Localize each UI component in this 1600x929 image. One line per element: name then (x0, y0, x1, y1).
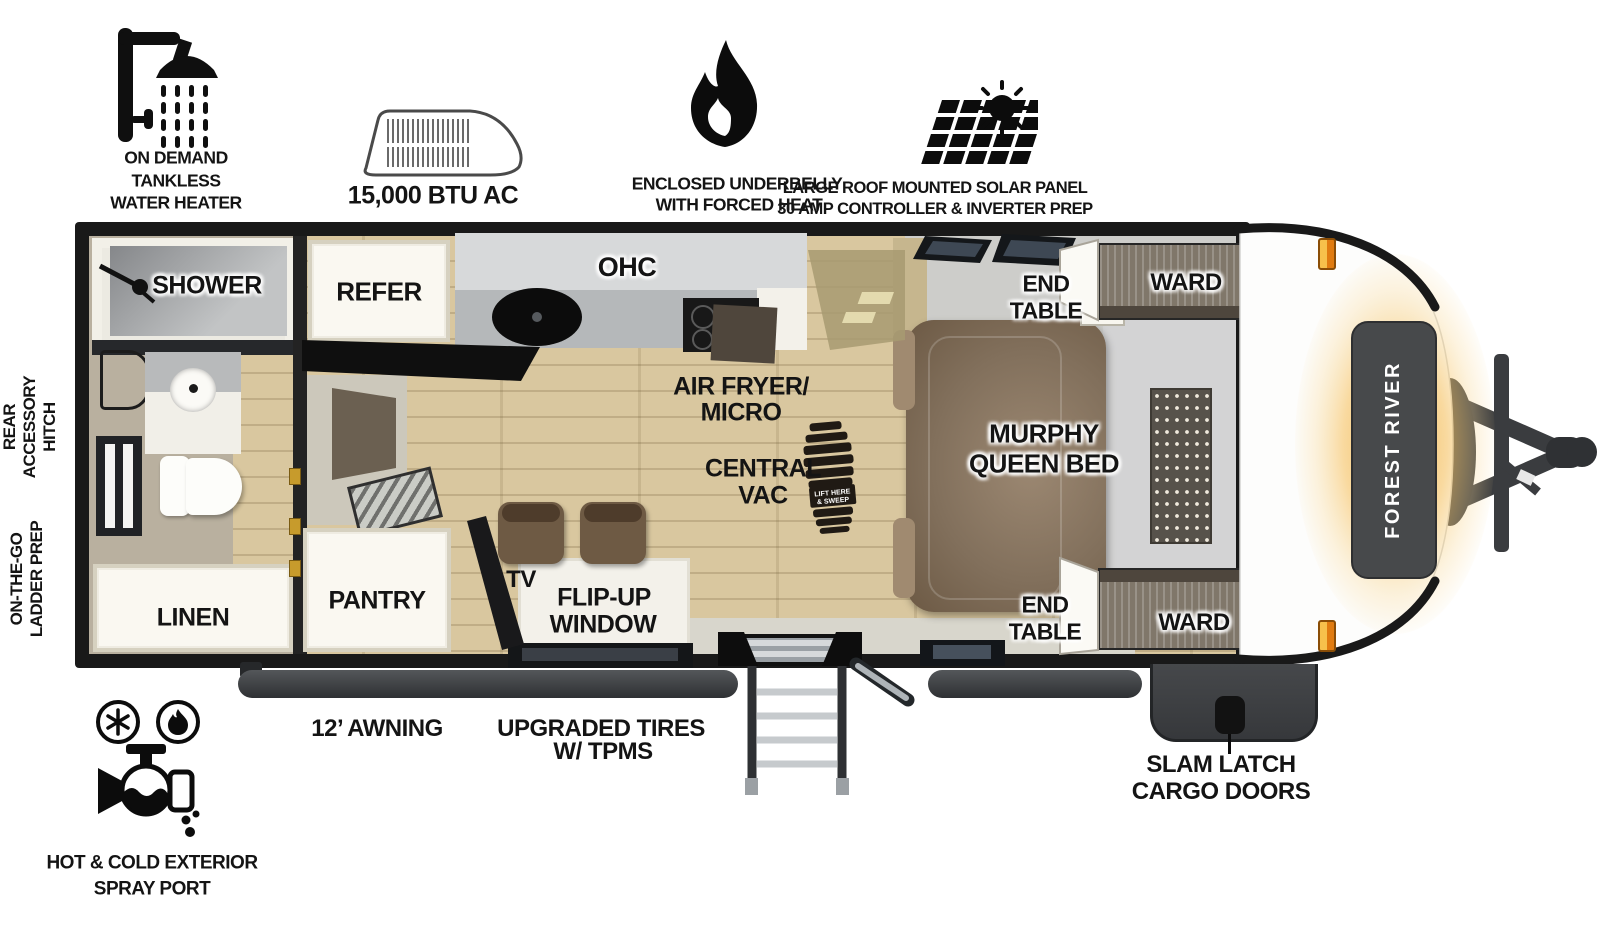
grab-handle (856, 664, 908, 700)
door-hinge (289, 468, 301, 485)
door-hinge (289, 518, 301, 535)
awning-tube (238, 670, 738, 698)
tires-label-2: W/ TPMS (553, 739, 652, 765)
flip-up-window-label-1: FLIP-UP (557, 584, 651, 612)
shower-label: SHOWER (152, 272, 262, 300)
slam-latch-handle (1215, 696, 1245, 734)
tongue-hitch (1424, 354, 1597, 552)
sofa-armrest (893, 518, 915, 598)
ward-bottom-label: WARD (1158, 610, 1229, 636)
air-fryer-micro-unit (711, 304, 778, 363)
entry-step-well (735, 634, 853, 666)
murphy-bed-label-1: MURPHY (989, 420, 1099, 449)
ohc-label: OHC (598, 253, 657, 283)
refer-label: REFER (336, 278, 422, 307)
cargo-door (1150, 664, 1318, 742)
central-vac-label-1: CENTRAL (705, 455, 821, 483)
front-cap (1240, 224, 1453, 664)
shower-head-icon (110, 14, 230, 150)
rear-accessory-hitch-label: REAR ACCESSORY HITCH (0, 376, 60, 479)
tv-label: TV (506, 567, 536, 593)
flame-small-icon (168, 709, 188, 735)
floorplan-scene: ON DEMAND TANKLESS WATER HEATER 15,000 B… (0, 0, 1600, 929)
linen-label: LINEN (157, 604, 230, 632)
snowflake-icon (108, 710, 128, 734)
water-heater-label-1: ON DEMAND (124, 148, 227, 167)
awning-tube (928, 670, 1142, 698)
brand-logo-text: FOREST RIVER (1382, 361, 1406, 539)
marker-light (1318, 238, 1336, 270)
end-table-bottom-label-1: END (1021, 592, 1068, 617)
flame-icon (674, 38, 774, 156)
bath-mirror (100, 350, 150, 410)
cargo-doors-label-2: CARGO DOORS (1132, 779, 1311, 805)
air-fryer-label-2: MICRO (701, 399, 782, 427)
toilet-bowl (186, 458, 242, 515)
water-heater-label-2: TANKLESS (131, 171, 220, 190)
bath-faucet (189, 384, 198, 393)
end-table-bottom-label-2: TABLE (1009, 619, 1081, 644)
flip-up-window-frame (508, 643, 693, 668)
ward-top-label: WARD (1150, 270, 1221, 296)
air-fryer-label-1: AIR FRYER/ (673, 373, 809, 401)
cargo-doors-label-1: SLAM LATCH (1146, 752, 1295, 778)
ac-label: 15,000 BTU AC (348, 182, 518, 210)
bed-head-wall (893, 238, 927, 334)
bath-window (96, 436, 142, 536)
marker-light (1318, 620, 1336, 652)
solar-panel-icon (868, 80, 1038, 175)
murphy-bed-label-2: QUEEN BED (969, 450, 1119, 479)
solar-label-2: 30 AMP CONTROLLER & INVERTER PREP (777, 200, 1092, 218)
door-hinge (289, 560, 301, 577)
ac-unit-icon (352, 104, 527, 184)
spray-port-icon (86, 692, 226, 842)
end-table-top-label-1: END (1022, 271, 1069, 296)
spray-port-label-1: HOT & COLD EXTERIOR (46, 854, 257, 875)
solar-label-1: LARGE ROOF MOUNTED SOLAR PANEL (783, 179, 1088, 197)
flip-up-window-label-2: WINDOW (550, 611, 657, 639)
ladder-prep-label: ON-THE-GO LADDER PREP (7, 521, 47, 637)
entry-steps (745, 666, 849, 795)
bathroom-wood-strip (233, 348, 293, 566)
water-heater-label-3: WATER HEATER (110, 193, 241, 212)
sofa-armrest (893, 330, 915, 410)
central-vac-label-2: VAC (738, 482, 787, 510)
end-table-top-label-2: TABLE (1010, 298, 1082, 323)
stool (580, 502, 646, 564)
pantry-label: PANTRY (329, 587, 426, 615)
bottom-wall-window (920, 640, 1005, 666)
awning-label: 12’ AWNING (311, 716, 442, 742)
kitchen-faucet (532, 312, 542, 322)
bed-rug (1150, 388, 1212, 544)
stool (498, 502, 564, 564)
spray-port-label-2: SPRAY PORT (94, 880, 210, 901)
